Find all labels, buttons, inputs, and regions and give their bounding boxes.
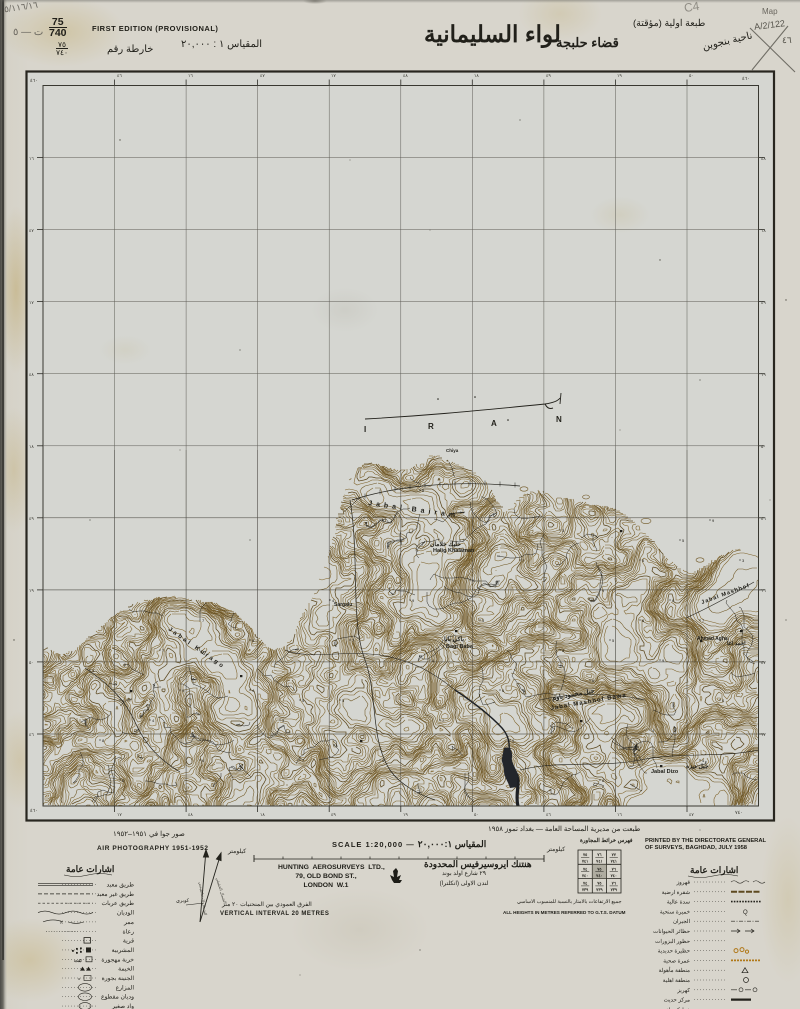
svg-text:قرية: قرية [123,939,134,945]
svg-text:حظيرة حديدية: حظيرة حديدية [658,948,691,955]
svg-text:شقرة ارضية: شقرة ارضية [662,889,691,896]
svg-text:طريق معبد: طريق معبد [107,882,135,889]
svg-text:رعاة: رعاة [123,928,135,935]
svg-text:o: o [78,976,81,981]
svg-text:ممر: ممر [123,920,134,926]
svg-text:الجنينة بجورة: الجنينة بجورة [102,975,135,982]
svg-text:وديان مقطوع: وديان مقطوع [101,994,134,1001]
svg-text:طريق عربات: طريق عربات [102,900,135,907]
svg-text:مركز حديث: مركز حديث [664,997,690,1004]
svg-text:حظور البزورات: حظور البزورات [655,938,690,945]
svg-text:حظائر الحيوانات: حظائر الحيوانات [653,928,690,935]
svg-text:Q: Q [743,910,748,916]
svg-text:اشارات عامة: اشارات عامة [690,865,738,876]
svg-text:)(: )( [60,919,63,924]
svg-text:المزارع: المزارع [116,984,135,991]
svg-text:كهريز: كهريز [676,987,690,994]
svg-text:قهروز: قهروز [675,880,690,886]
svg-text:الجيران: الجيران [673,918,690,925]
svg-text:تتت: تتت [74,958,82,964]
svg-text:عمرة صحية: عمرة صحية [663,958,690,964]
svg-text:منطقة مأهولة: منطقة مأهولة [659,965,690,974]
svg-text:خربة مهجورة: خربة مهجورة [101,957,134,963]
svg-text:المشربية: المشربية [112,947,135,954]
svg-text:اشارات عامة: اشارات عامة [66,864,114,875]
svg-text:خميرة سنحية: خميرة سنحية [660,909,691,915]
svg-text:واد صغير: واد صغير [111,1003,134,1009]
svg-text:الوديان: الوديان [117,910,135,917]
svg-text:سدة عالية: سدة عالية [667,899,691,906]
svg-text:طريق غير معبد: طريق غير معبد [97,891,135,898]
svg-text:الخيمة: الخيمة [118,966,134,973]
svg-text:منطقة اهلية: منطقة اهلية [663,977,690,984]
